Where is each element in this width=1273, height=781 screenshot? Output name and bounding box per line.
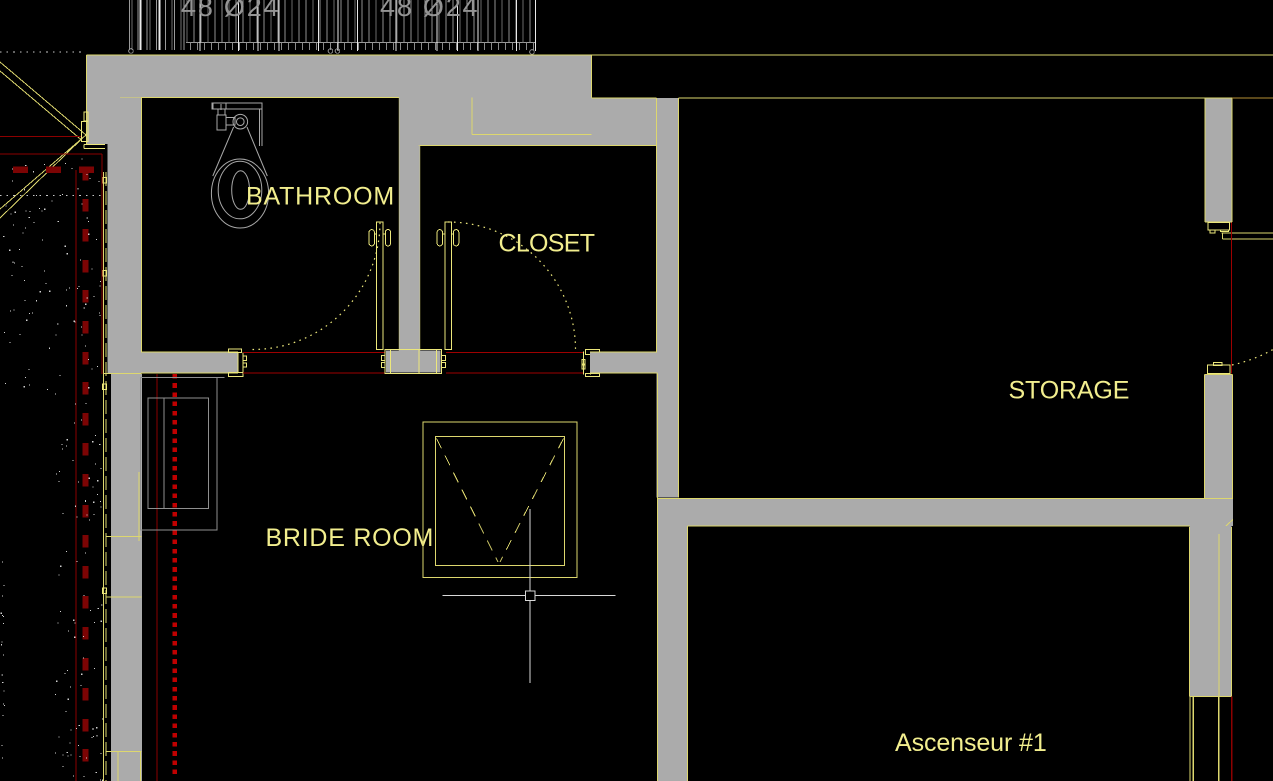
- svg-text:Ascenseur #1: Ascenseur #1: [895, 729, 1047, 757]
- svg-text:48 Ø24: 48 Ø24: [380, 0, 479, 22]
- svg-text:BRIDE ROOM: BRIDE ROOM: [266, 524, 435, 552]
- svg-text:BATHROOM: BATHROOM: [246, 183, 395, 211]
- svg-text:CLOSET: CLOSET: [499, 230, 595, 258]
- svg-text:STORAGE: STORAGE: [1009, 377, 1130, 405]
- svg-text:48 Ø24: 48 Ø24: [181, 0, 280, 22]
